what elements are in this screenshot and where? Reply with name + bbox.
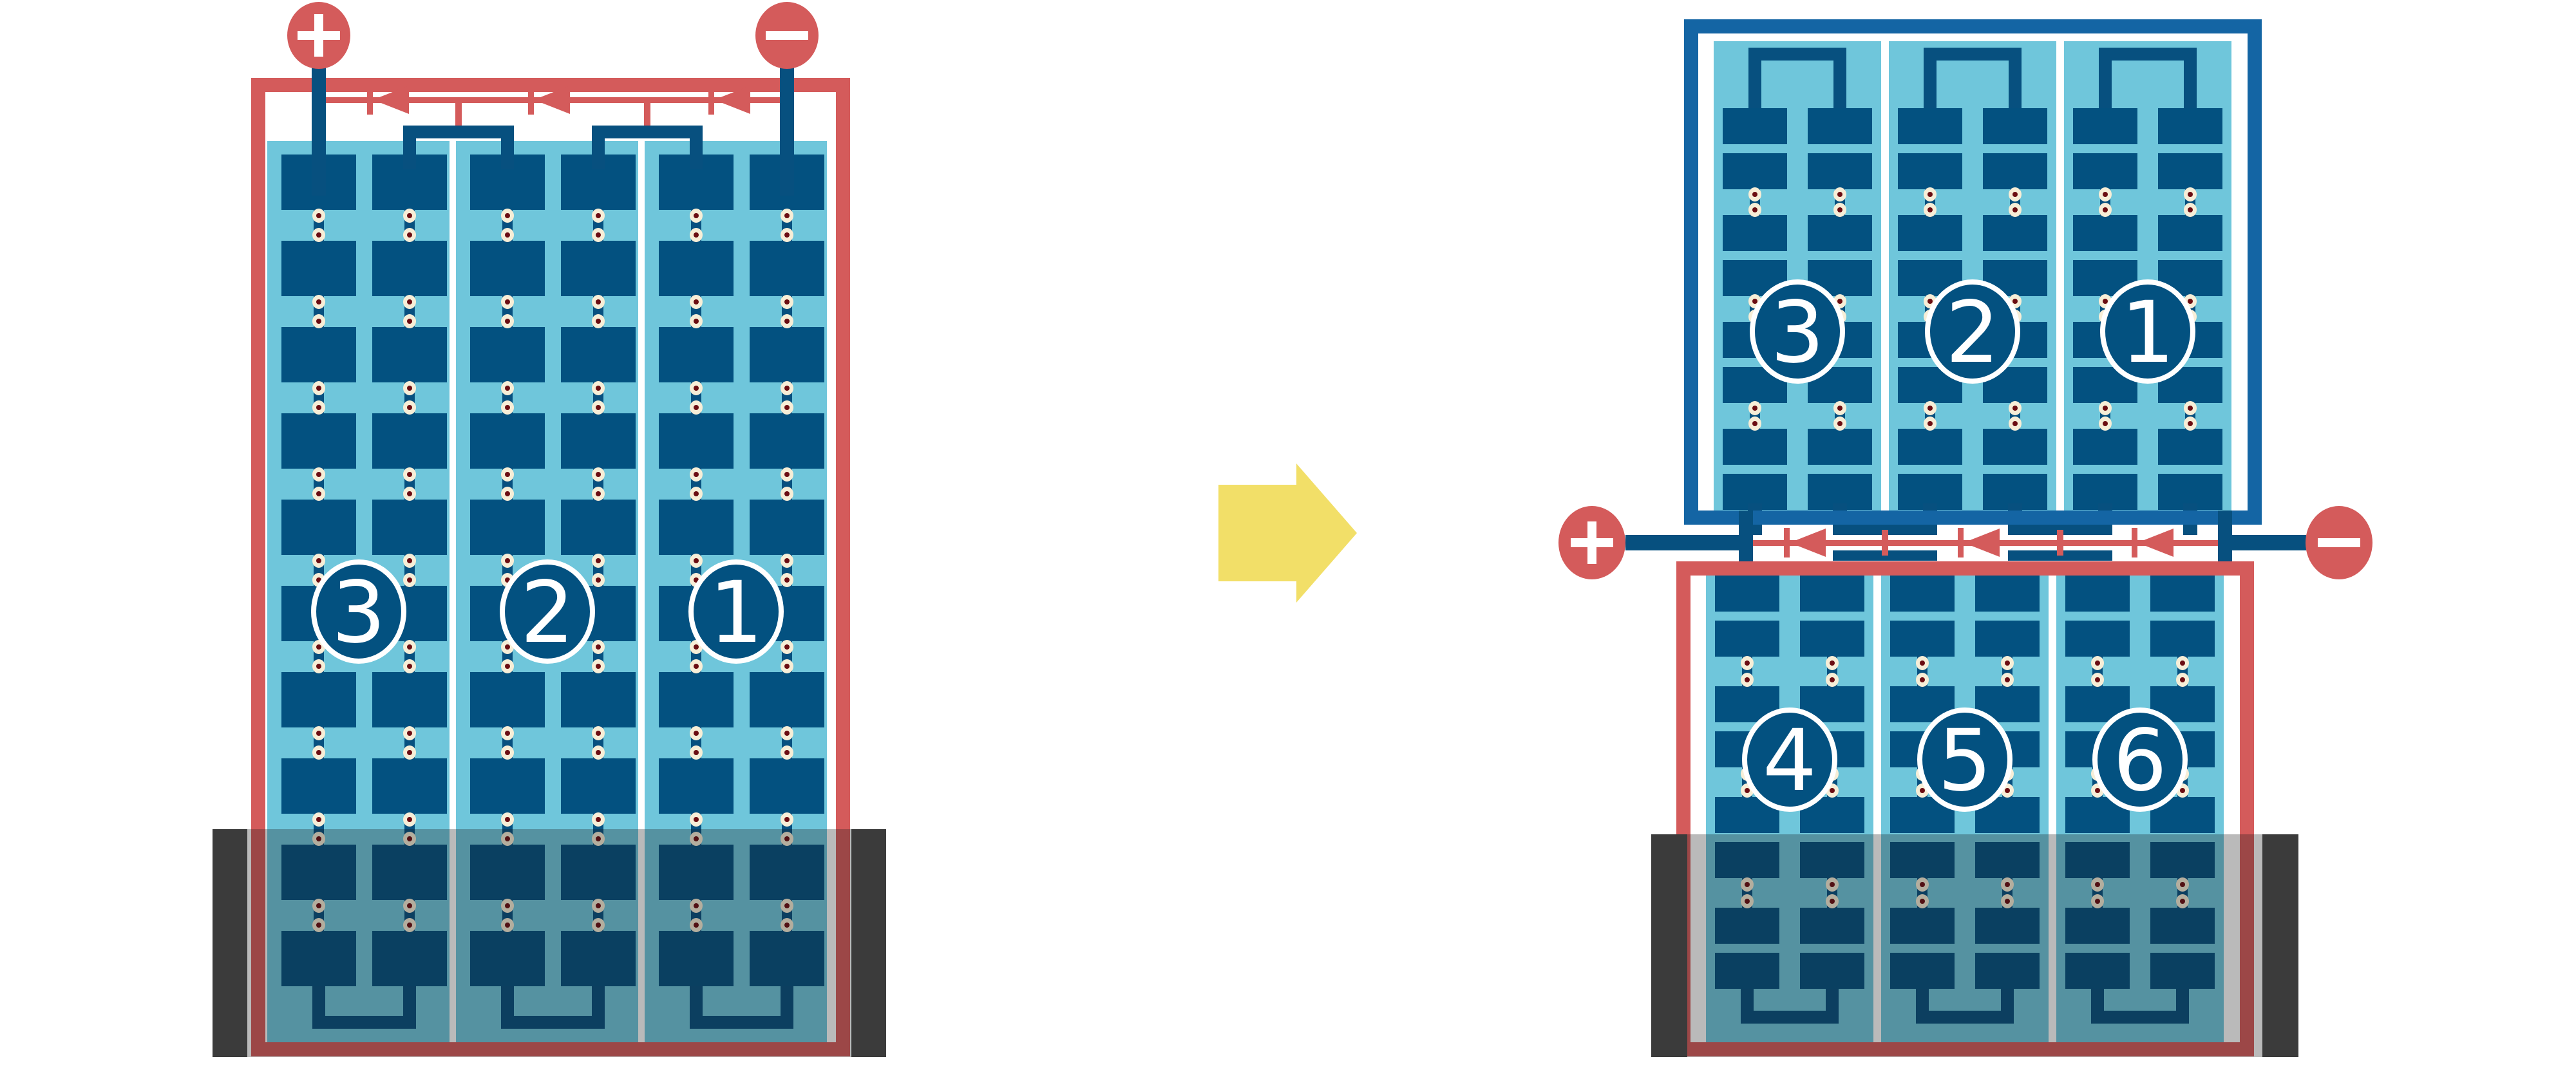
solder-dot-inner (505, 664, 510, 669)
solder-dot-inner (316, 319, 321, 324)
cell-interconnect (2099, 401, 2112, 431)
cell-interconnect (2099, 187, 2112, 217)
negative-terminal-wire (780, 63, 794, 196)
solder-dot-inner (505, 472, 510, 477)
solder-dot-inner (1752, 421, 1757, 426)
solar-half-cell (2073, 215, 2137, 251)
diode-cathode-bar (528, 85, 534, 115)
solder-dot-inner (784, 731, 790, 736)
solder-dot-inner (316, 232, 321, 238)
solder-dot-inner (2180, 677, 2185, 682)
cell-interconnect (312, 209, 325, 242)
solder-dot-inner (596, 664, 601, 669)
solder-dot-inner (2005, 677, 2010, 682)
solder-dot-inner (784, 664, 790, 669)
top-bridge-bar (1924, 48, 2022, 61)
solder-dot-inner (407, 750, 412, 755)
cell-interconnect (403, 640, 416, 673)
solder-dot-inner (1927, 192, 1933, 197)
solar-half-cell (1983, 215, 2047, 251)
cell-interconnect (403, 467, 416, 501)
transition-arrow (1218, 464, 1357, 603)
solder-dot-inner (694, 405, 699, 410)
solder-dot-inner (1927, 421, 1933, 426)
badge-number: 5 (1938, 711, 1992, 810)
solder-dot-inner (407, 386, 412, 391)
solar-cell (281, 413, 356, 469)
solder-dot-inner (596, 644, 601, 650)
string-number-badge: 3 (314, 562, 404, 662)
solder-dot-inner (694, 232, 699, 238)
solder-dot-inner (694, 644, 699, 650)
solar-cell (659, 758, 734, 814)
cell-interconnect (592, 467, 605, 501)
right-arrow-icon (1218, 464, 1357, 603)
solder-dot-inner (694, 299, 699, 304)
solar-cell (281, 500, 356, 555)
solder-dot-inner (2012, 299, 2018, 304)
solder-dot-inner (1752, 207, 1757, 212)
top-bridge-leg (1748, 61, 1761, 115)
shadow-overlay (1651, 834, 2298, 1057)
solar-half-cell (1983, 108, 2047, 144)
right-top-module: 321 (1684, 19, 2262, 525)
cell-interconnect (690, 467, 703, 501)
cell-interconnect (592, 554, 605, 587)
solder-dot-inner (1745, 677, 1750, 682)
left-module: 321 (213, 2, 886, 1057)
solder-dot-inner (505, 491, 510, 496)
cell-interconnect (312, 381, 325, 415)
solder-dot-inner (2188, 207, 2193, 212)
cell-interconnect (690, 726, 703, 760)
solder-dot-inner (316, 817, 321, 822)
cell-interconnect (781, 295, 793, 328)
solder-dot-inner (407, 405, 412, 410)
diode-cathode-bar (1784, 528, 1790, 557)
top-bridge-leg (1924, 61, 1937, 115)
badge-number: 1 (709, 563, 763, 662)
solder-dot-inner (596, 213, 601, 218)
solder-dot-inner (316, 213, 321, 218)
string-number-badge: 1 (691, 562, 781, 662)
solder-dot-inner (1830, 660, 1835, 666)
solder-dot-inner (1830, 788, 1835, 793)
badge-number: 4 (1763, 711, 1817, 810)
diagram-stage: 321321456 (0, 0, 2576, 1068)
cell-interconnect (501, 295, 514, 328)
solar-cell (372, 413, 447, 469)
top-bridge-leg (592, 138, 605, 169)
cell-interconnect (781, 381, 793, 415)
solar-cell (561, 241, 636, 296)
solder-dot-inner (694, 472, 699, 477)
solar-half-cell (1975, 621, 2040, 657)
solder-dot-inner (784, 644, 790, 650)
frame-stub (2098, 503, 2112, 511)
solar-cell (372, 327, 447, 382)
string-number-badge: 2 (502, 562, 592, 662)
negative-junction-stub (2218, 511, 2232, 561)
solder-dot-inner (407, 319, 412, 324)
solder-dot-inner (694, 386, 699, 391)
solder-dot-inner (1837, 207, 1842, 212)
cell-interconnect (690, 209, 703, 242)
solar-half-cell (1808, 153, 1872, 189)
solder-dot-inner (316, 558, 321, 563)
solder-dot-inner (407, 213, 412, 218)
string-number-badge: 2 (1927, 282, 2018, 382)
solder-dot-inner (784, 817, 790, 822)
cell-interconnect (781, 467, 793, 501)
solar-half-cell (1975, 576, 2040, 612)
diode-tap (455, 102, 462, 127)
solder-dot-inner (1837, 406, 1842, 411)
solder-dot-inner (1837, 192, 1842, 197)
cell-interconnect (592, 381, 605, 415)
solar-half-cell (2158, 108, 2222, 144)
frame-stub (2008, 503, 2022, 511)
solder-dot-inner (1752, 406, 1757, 411)
solder-dot-inner (505, 731, 510, 736)
solder-dot-inner (2012, 406, 2018, 411)
solder-dot-inner (2005, 660, 2010, 666)
cell-interconnect (403, 209, 416, 242)
solder-dot-inner (2012, 207, 2018, 212)
top-bridge-leg (2009, 61, 2022, 115)
top-bridge-leg (2099, 61, 2112, 115)
cell-interconnect (403, 726, 416, 760)
bypass-diode-icon (1958, 528, 2000, 557)
solder-dot-inner (316, 644, 321, 650)
solar-cell (659, 672, 734, 727)
solder-dot-inner (1927, 299, 1933, 304)
solder-dot-inner (784, 299, 790, 304)
solar-half-cell (1808, 108, 1872, 144)
diode-arrow (2137, 529, 2173, 557)
bypass-diode-icon (1784, 528, 1826, 557)
top-bridge-bar (2099, 48, 2197, 61)
cell-interconnect (1741, 655, 1754, 688)
solder-dot-inner (2095, 677, 2100, 682)
solder-dot-inner (694, 817, 699, 822)
solder-dot-inner (316, 386, 321, 391)
frame-stub (1748, 503, 1762, 511)
shadow-edge-bar (2262, 834, 2298, 1057)
cell-interconnect (1833, 187, 1846, 217)
diode-tap (644, 102, 650, 127)
top-bridge-leg (501, 138, 514, 169)
solder-dot-inner (784, 386, 790, 391)
solar-half-cell (2065, 576, 2130, 612)
cell-interconnect (781, 209, 793, 242)
solder-dot-inner (1927, 207, 1933, 212)
cell-interconnect (592, 209, 605, 242)
solar-half-cell (1898, 429, 1962, 465)
left-shadow-band (213, 829, 886, 1057)
solder-dot-inner (407, 577, 412, 583)
solar-cell (750, 672, 824, 727)
solar-half-cell (2158, 215, 2222, 251)
solar-half-cell (1898, 108, 1962, 144)
solar-half-cell (1723, 153, 1787, 189)
solder-dot-inner (694, 491, 699, 496)
solar-half-cell (2073, 108, 2137, 144)
solar-cell (561, 758, 636, 814)
badge-number: 6 (2113, 711, 2167, 810)
solder-dot-inner (2188, 299, 2193, 304)
solder-dot-inner (784, 405, 790, 410)
cell-interconnect (1748, 401, 1761, 431)
solar-cell (561, 500, 636, 555)
string-number-badge: 3 (1752, 282, 1842, 382)
shadow-overlay (213, 829, 886, 1057)
solder-dot-inner (2012, 421, 2018, 426)
solder-dot-inner (596, 817, 601, 822)
solder-dot-inner (407, 472, 412, 477)
solder-dot-inner (694, 213, 699, 218)
cell-interconnect (403, 554, 416, 587)
solder-dot-inner (2188, 406, 2193, 411)
solder-dot-inner (505, 386, 510, 391)
solar-half-cell (2158, 153, 2222, 189)
frame-top (1676, 561, 2254, 576)
solar-half-cell (1890, 621, 1955, 657)
frame-top (1684, 19, 2262, 33)
cell-interconnect (592, 640, 605, 673)
cell-interconnect (2184, 401, 2197, 431)
cell-interconnect (501, 726, 514, 760)
solder-dot-inner (2103, 421, 2108, 426)
junction-bypass-diode-chain (1753, 528, 2218, 557)
solar-half-cell (2073, 153, 2137, 189)
solder-dot-inner (596, 731, 601, 736)
solar-half-cell (1800, 576, 1864, 612)
cell-interconnect (592, 726, 605, 760)
frame-stub (2183, 503, 2197, 511)
cell-interconnect (1924, 187, 1937, 217)
solder-dot-inner (505, 750, 510, 755)
badge-number: 2 (520, 563, 574, 662)
solar-half-cell (1898, 215, 1962, 251)
diode-cathode-bar (367, 85, 373, 115)
solar-cell (372, 500, 447, 555)
solar-cell (372, 758, 447, 814)
solar-cell (470, 672, 545, 727)
plus-icon (314, 14, 323, 57)
solar-cell (561, 327, 636, 382)
solder-dot-inner (505, 319, 510, 324)
solar-cell (281, 327, 356, 382)
solar-half-cell (1898, 153, 1962, 189)
cell-interconnect (781, 726, 793, 760)
top-bridge-leg (403, 138, 416, 169)
solder-dot-inner (2012, 192, 2018, 197)
solar-half-cell (1983, 429, 2047, 465)
string-number-badge: 1 (2103, 282, 2193, 382)
string-number-badge: 5 (1920, 710, 2010, 810)
negative-terminal (2306, 506, 2372, 579)
cell-interconnect (781, 554, 793, 587)
solar-half-cell (1723, 429, 1787, 465)
frame-left (1684, 19, 1698, 525)
solder-dot-inner (407, 731, 412, 736)
solder-dot-inner (2188, 421, 2193, 426)
cell-interconnect (2009, 401, 2022, 431)
solder-dot-inner (2103, 207, 2108, 212)
frame-stub (1833, 503, 1847, 511)
shadow-edge-bar (213, 829, 247, 1057)
badge-number: 2 (1946, 283, 2000, 382)
solar-cell (561, 413, 636, 469)
solder-dot-inner (694, 731, 699, 736)
cell-interconnect (1924, 401, 1937, 431)
solder-dot-inner (694, 750, 699, 755)
badge-number: 3 (332, 563, 386, 662)
solar-half-cell (1723, 215, 1787, 251)
solder-dot-inner (1920, 788, 1925, 793)
solder-dot-inner (784, 558, 790, 563)
frame-top (251, 78, 850, 92)
solder-dot-inner (316, 750, 321, 755)
positive-terminal (1558, 506, 1625, 579)
solder-dot-inner (596, 319, 601, 324)
solder-dot-inner (505, 299, 510, 304)
solder-dot-inner (694, 558, 699, 563)
solar-cell (659, 413, 734, 469)
solder-dot-inner (2103, 299, 2108, 304)
solar-cell (659, 500, 734, 555)
solder-dot-inner (316, 405, 321, 410)
cell-interconnect (1916, 655, 1929, 688)
solar-cell (750, 413, 824, 469)
solder-dot-inner (407, 232, 412, 238)
solder-dot-inner (316, 491, 321, 496)
frame-stub (1923, 503, 1937, 511)
solder-dot-inner (694, 664, 699, 669)
top-bridge-leg (690, 138, 703, 169)
solar-cell (281, 672, 356, 727)
solder-dot-inner (784, 491, 790, 496)
solder-dot-inner (1830, 677, 1835, 682)
solder-dot-inner (1745, 660, 1750, 666)
solder-dot-inner (1920, 660, 1925, 666)
cell-interconnect (690, 381, 703, 415)
minus-icon (2318, 538, 2360, 547)
solar-half-cell (1715, 621, 1779, 657)
solder-dot-inner (316, 664, 321, 669)
solder-dot-inner (596, 577, 601, 583)
solar-cell (470, 327, 545, 382)
string-number-badge: 4 (1745, 710, 1835, 810)
solder-dot-inner (596, 472, 601, 477)
solder-dot-inner (407, 817, 412, 822)
junction-stub (2183, 525, 2197, 535)
cell-interconnect (2184, 187, 2197, 217)
solar-cell (659, 327, 734, 382)
plus-icon (1587, 521, 1596, 564)
diode-cathode-bar (708, 85, 714, 115)
solder-dot-inner (505, 817, 510, 822)
solar-cell (659, 241, 734, 296)
solder-dot-inner (784, 232, 790, 238)
badge-number: 1 (2121, 283, 2175, 382)
cell-interconnect (592, 295, 605, 328)
solar-cell (750, 500, 824, 555)
solar-half-cell (2073, 429, 2137, 465)
solder-dot-inner (505, 213, 510, 218)
frame-right (2248, 19, 2262, 525)
solder-dot-inner (2103, 406, 2108, 411)
diode-cathode-bar (1958, 528, 1964, 557)
bypass-diode-icon (2132, 528, 2173, 557)
solder-dot-inner (596, 386, 601, 391)
solder-dot-inner (316, 472, 321, 477)
solder-dot-inner (2180, 660, 2185, 666)
minus-icon (766, 31, 808, 40)
solder-dot-inner (407, 644, 412, 650)
solar-cell (470, 413, 545, 469)
solar-cell (281, 241, 356, 296)
right-top-cell-grid (1714, 41, 2231, 511)
solder-dot-inner (1752, 192, 1757, 197)
badge-number: 3 (1770, 283, 1824, 382)
solar-half-cell (1723, 108, 1787, 144)
cell-interconnect (2091, 655, 2104, 688)
positive-terminal (287, 2, 350, 69)
solar-half-cell (2150, 621, 2215, 657)
solar-cell (470, 758, 545, 814)
cell-interconnect (312, 467, 325, 501)
cell-interconnect (1748, 187, 1761, 217)
solder-dot-inner (407, 491, 412, 496)
cell-interconnect (2009, 187, 2022, 217)
solder-dot-inner (407, 558, 412, 563)
right-shadow-band (1651, 834, 2298, 1057)
solar-module-diagram: 321321456 (0, 0, 2576, 1068)
solar-cell (470, 241, 545, 296)
solder-dot-inner (505, 558, 510, 563)
solar-half-cell (2158, 429, 2222, 465)
solder-dot-inner (596, 750, 601, 755)
top-bridge-leg (2184, 61, 2197, 115)
solder-dot-inner (1752, 299, 1757, 304)
solder-dot-inner (694, 319, 699, 324)
cell-interconnect (312, 295, 325, 328)
solar-half-cell (1808, 215, 1872, 251)
solder-dot-inner (505, 232, 510, 238)
solder-dot-inner (596, 232, 601, 238)
cell-interconnect (403, 381, 416, 415)
cell-interconnect (501, 209, 514, 242)
solder-dot-inner (1920, 677, 1925, 682)
solar-cell (750, 327, 824, 382)
cell-interconnect (781, 640, 793, 673)
solder-dot-inner (407, 664, 412, 669)
negative-terminal (755, 2, 819, 69)
diode-arrow (1964, 529, 2000, 557)
diode-cathode-bar (2132, 528, 2137, 557)
solder-dot-inner (596, 558, 601, 563)
solder-dot-inner (407, 299, 412, 304)
solder-dot-inner (316, 731, 321, 736)
solar-half-cell (1715, 576, 1779, 612)
solar-cell (750, 241, 824, 296)
solder-dot-inner (1745, 788, 1750, 793)
solder-dot-inner (505, 405, 510, 410)
cell-interconnect (501, 467, 514, 501)
solar-cell (372, 241, 447, 296)
